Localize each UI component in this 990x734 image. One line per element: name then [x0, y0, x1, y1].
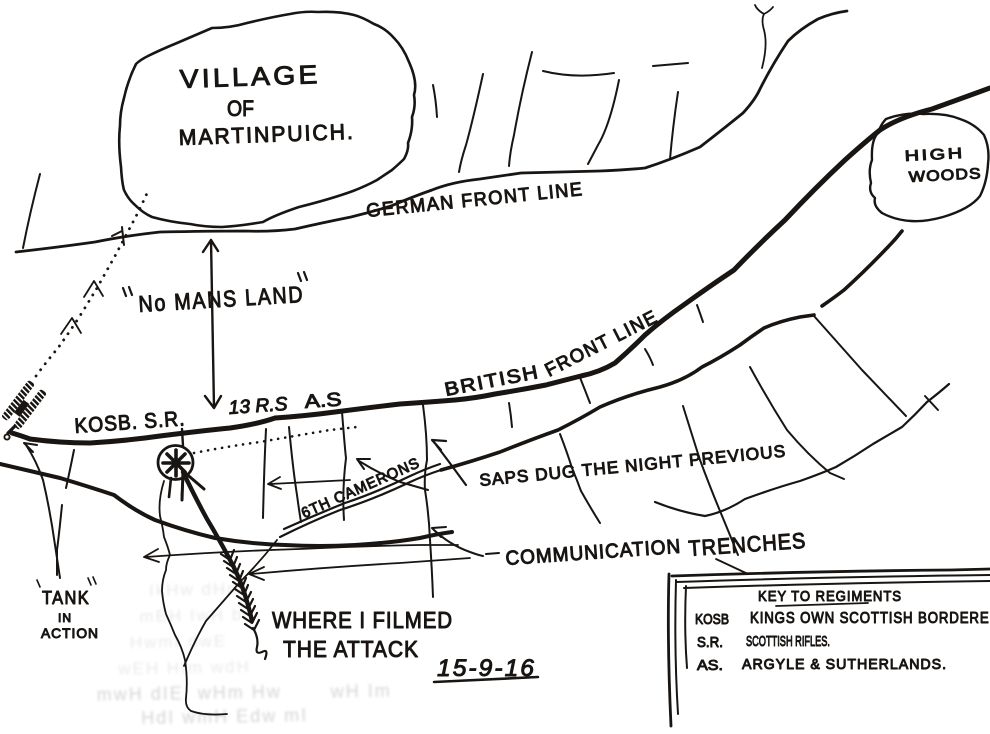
svg-text:HIGH: HIGH — [904, 145, 965, 165]
svg-text:COMMUNICATION: COMMUNICATION — [505, 536, 682, 570]
svg-text:mwH dIE. wHm Hw: mwH dIE. wHm Hw — [97, 682, 282, 705]
svg-text:AS.: AS. — [697, 657, 723, 674]
svg-text:WHERE I FILMED: WHERE I FILMED — [272, 607, 453, 633]
svg-text:ACTION: ACTION — [41, 625, 99, 641]
svg-text:S.R.: S.R. — [697, 634, 723, 651]
svg-text:IN: IN — [58, 611, 72, 625]
svg-text:OF: OF — [227, 96, 254, 121]
svg-text:mEH IwH b: mEH IwH b — [139, 605, 243, 626]
svg-text:TRENCHES: TRENCHES — [688, 528, 807, 561]
svg-text:wH Im: wH Im — [330, 681, 392, 702]
svg-text:13 R.S: 13 R.S — [228, 394, 289, 419]
svg-text:A.S: A.S — [304, 389, 342, 413]
svg-text:HdI wmH Edw mI: HdI wmH Edw mI — [141, 705, 308, 728]
svg-text:THE ATTACK: THE ATTACK — [283, 636, 419, 662]
svg-text:ARGYLE & SUTHERLANDS.: ARGYLE & SUTHERLANDS. — [742, 656, 947, 673]
svg-text:wEH HIm wdH: wEH HIm wdH — [117, 657, 251, 678]
svg-text:KINGS OWN SCOTTISH BORDERER: KINGS OWN SCOTTISH BORDERER — [750, 610, 990, 627]
svg-text:KEY TO REGIMENTS: KEY TO REGIMENTS — [758, 588, 902, 605]
svg-text:KOSB: KOSB — [695, 611, 729, 628]
svg-text:SCOTTISH RIFLES.: SCOTTISH RIFLES. — [746, 633, 830, 650]
svg-text:SAPS DUG THE NIGHT PREVIOUS: SAPS DUG THE NIGHT PREVIOUS — [479, 442, 787, 490]
svg-text:TANK: TANK — [42, 588, 90, 608]
svg-text:GERMAN FRONT LINE: GERMAN FRONT LINE — [365, 179, 584, 222]
svg-text:No MANS LAND: No MANS LAND — [138, 281, 305, 317]
svg-text:VILLAGE: VILLAGE — [179, 59, 321, 94]
svg-text:MARTINPUICH.: MARTINPUICH. — [178, 119, 355, 150]
svg-text:WOODS: WOODS — [908, 165, 982, 186]
